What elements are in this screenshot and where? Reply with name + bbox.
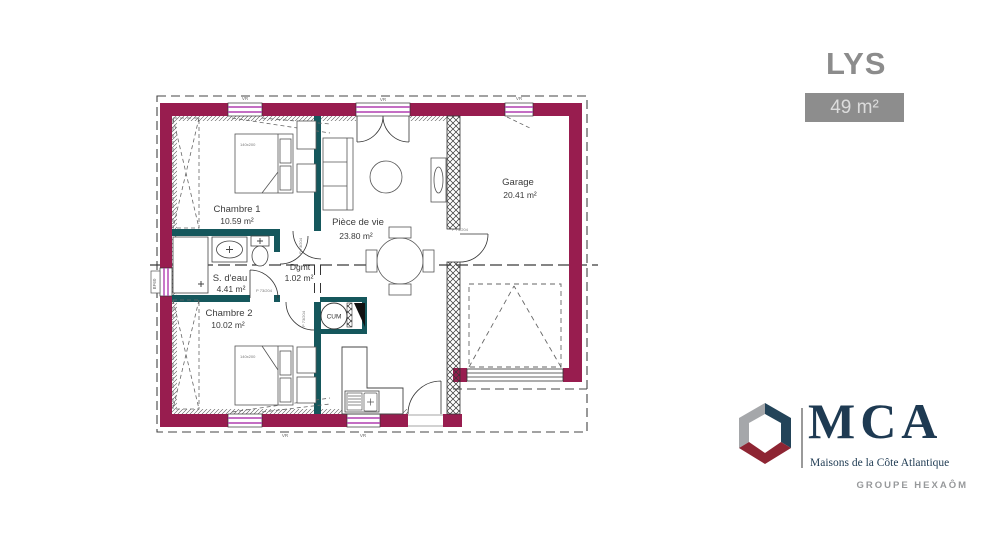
wc-bowl [252, 246, 268, 266]
logo-divider [801, 408, 803, 468]
cum-label: CUM [327, 314, 342, 321]
plan-title: LYS [826, 46, 946, 82]
logo-tagline: Maisons de la Côte Atlantique [810, 457, 968, 469]
area-chambre1: 10.59 m² [220, 216, 254, 226]
tag-left-window: BF60 [152, 278, 157, 289]
label-chambre2: Chambre 2 [206, 308, 253, 319]
logo-brand: MCA [808, 392, 942, 450]
french-door-arcs [357, 116, 409, 142]
label-chambre1: Chambre 1 [214, 204, 261, 215]
door-chambre2 [286, 302, 314, 330]
dining-table [377, 238, 423, 284]
window-chambre2 [228, 414, 262, 427]
area-badge: 49 m² [805, 93, 904, 122]
label-piece-de-vie: Pièce de vie [332, 217, 384, 228]
tag-vr-4: VR [282, 433, 289, 438]
logo-group: GROUPE HEXAÔM [810, 480, 968, 491]
threshold-marks [315, 265, 321, 293]
tag-vr-2: VR [380, 97, 387, 102]
label-garage: Garage [502, 177, 534, 188]
coffee-table [370, 161, 402, 193]
label-degagement: Dgmt [290, 262, 311, 272]
door-sdeau-top [280, 236, 308, 264]
window-chambre1 [228, 103, 262, 116]
garage-separation-wall [447, 116, 460, 414]
label-sdeau: S. d'eau [213, 273, 248, 284]
tag-door-garage: P 73/204 [452, 227, 469, 232]
garage-door [467, 284, 563, 381]
tag-vr-5: VR [360, 433, 367, 438]
area-sdeau: 4.41 m² [217, 284, 246, 294]
floor-plan-page: CUM Chambre 1 10.59 m² S. d'eau 4.41 m² … [0, 0, 1000, 554]
door-garage [460, 234, 488, 262]
area-degagement: 1.02 m² [285, 273, 314, 283]
window-garage [505, 103, 533, 116]
area-chambre2: 10.02 m² [211, 320, 245, 330]
shower [173, 237, 208, 293]
water-heater-hatch [347, 303, 352, 327]
sofa [323, 138, 353, 210]
area-garage: 20.41 m² [503, 190, 537, 200]
tag-bed1: 140x200 [240, 142, 256, 147]
mca-cube-icon [737, 402, 793, 468]
tag-vr-1: VR [242, 96, 249, 101]
kitchen: CUM [321, 303, 403, 414]
tag-bed2: 140x200 [240, 354, 256, 359]
tag-door-ch1: P 73/204 [298, 237, 303, 254]
water-heater [354, 303, 365, 327]
tag-door-ch2: P 73/204 [301, 310, 306, 327]
window-french-door [356, 103, 410, 116]
tag-door-sdeau: P 73/204 [256, 288, 273, 293]
area-piece-de-vie: 23.80 m² [339, 231, 373, 241]
furniture-chambre1 [235, 121, 316, 193]
mca-logo: MCA Maisons de la Côte Atlantique GROUPE… [737, 400, 977, 505]
tag-vr-3: VR [516, 96, 523, 101]
window-kitchen [347, 414, 380, 427]
door-sdeau [250, 270, 278, 298]
door-entrance [408, 381, 441, 414]
